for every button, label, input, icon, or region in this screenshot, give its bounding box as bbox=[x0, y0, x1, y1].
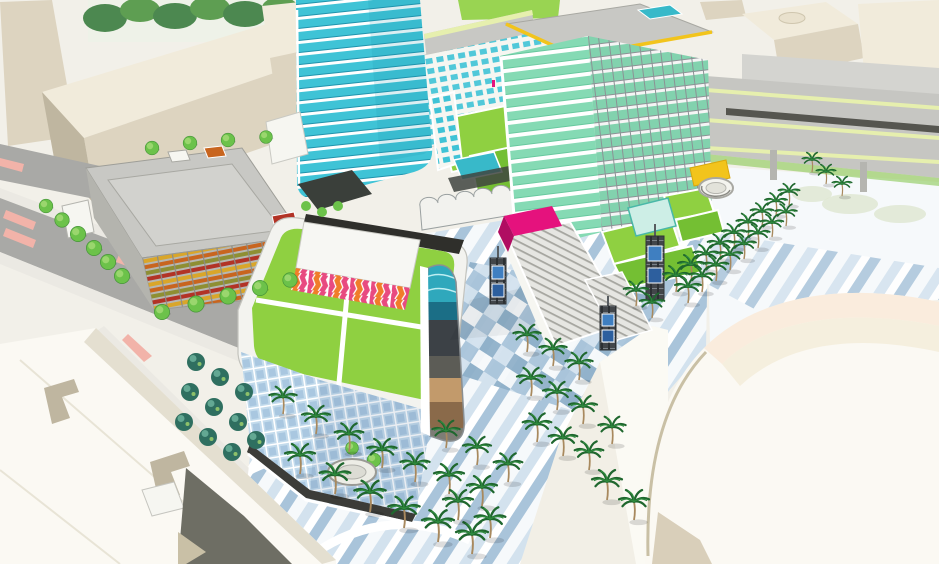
bosque-tree bbox=[235, 383, 253, 401]
shrub bbox=[317, 207, 327, 217]
viaduct-pier bbox=[770, 150, 777, 180]
planting-bed bbox=[792, 186, 832, 202]
bosque-tree bbox=[187, 353, 205, 371]
bosque-tree bbox=[223, 443, 241, 461]
magenta-accent bbox=[492, 80, 495, 87]
rooftop-drum bbox=[779, 13, 805, 24]
viaduct-pier bbox=[860, 162, 867, 192]
bosque-tree bbox=[229, 413, 247, 431]
bosque-tree bbox=[205, 398, 223, 416]
bosque-tree bbox=[181, 383, 199, 401]
shrub bbox=[333, 201, 343, 211]
rooftop-unit bbox=[168, 150, 190, 162]
planting-bed bbox=[874, 205, 926, 223]
aerial-rendering bbox=[0, 0, 939, 564]
rooftop-unit bbox=[204, 146, 226, 158]
spiral-kiosk-inner bbox=[706, 183, 726, 194]
bosque-tree bbox=[199, 428, 217, 446]
bosque-tree bbox=[175, 413, 193, 431]
rendering-canvas bbox=[0, 0, 939, 564]
bosque-tree bbox=[211, 368, 229, 386]
bosque-tree bbox=[247, 431, 265, 449]
shrub bbox=[301, 201, 311, 211]
